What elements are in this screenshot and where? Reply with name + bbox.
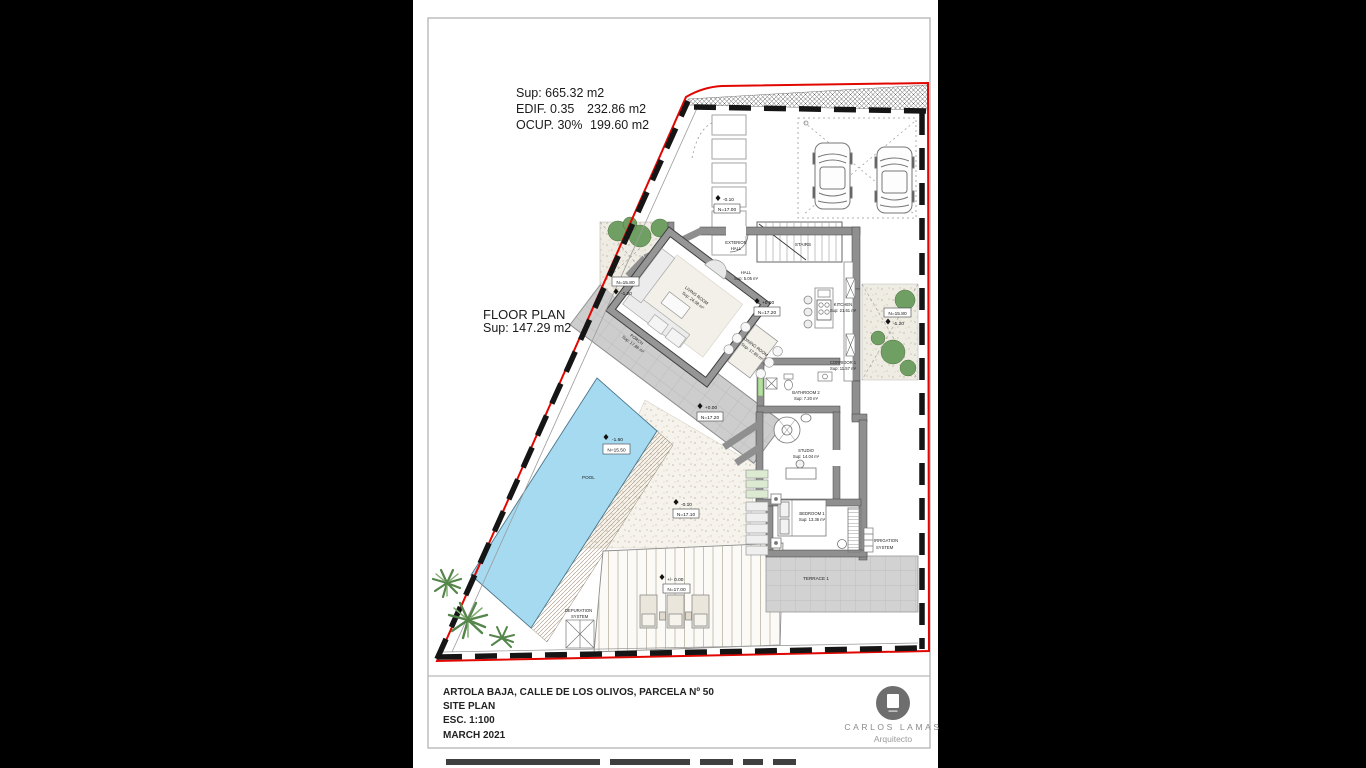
depuration-system-box xyxy=(566,620,594,648)
drawing-name: SITE PLAN xyxy=(443,701,495,712)
studio-label: STUDIO xyxy=(798,448,815,453)
level-entrance-delta: -0.10 xyxy=(723,197,734,203)
kitchen-label: KITCHEN xyxy=(834,302,852,307)
floor-plan-title: FLOOR PLAN Sup: 147.29 m2 xyxy=(483,307,571,335)
entrance-opening xyxy=(726,226,746,236)
level-deck-n: N=17.00 xyxy=(667,587,686,593)
site-plan-canvas: PORCH Sup: 17.86 m² xyxy=(0,0,1366,768)
drawing-scale: ESC. 1:100 xyxy=(443,715,495,726)
wood-deck xyxy=(594,543,783,652)
level-entrance-n: N=17.00 xyxy=(718,207,737,213)
terrace-tiles xyxy=(766,556,918,612)
kitchen-area: Sup: 21.61 m² xyxy=(830,308,857,313)
drawing-date: MARCH 2021 xyxy=(443,730,506,741)
stat-ocup-label: OCUP. 30% xyxy=(516,118,582,132)
bathroom2-area: Sup: 7.20 m² xyxy=(794,396,819,401)
stat-edif-value: 232.86 m2 xyxy=(587,102,646,116)
level-gravel-n: N=17.10 xyxy=(677,512,696,518)
bathroom2-label: BATHROOM 2 xyxy=(792,390,820,395)
level-main-n: N=17.20 xyxy=(758,310,777,316)
irrigation-system-box xyxy=(864,528,873,552)
project-address: ARTOLA BAJA, CALLE DE LOS OLIVOS, PARCEL… xyxy=(443,687,714,698)
irrigation-label-2: SYSTEM xyxy=(876,545,894,550)
car-icon xyxy=(875,147,914,213)
bedroom1-area: Sup: 13.36 m² xyxy=(799,517,826,522)
corridor-label: CORRIDOR 1 xyxy=(830,360,857,365)
level-garden-left-n: N=15.80 xyxy=(616,280,635,286)
level-garden-left-delta: -1.20 xyxy=(621,291,632,297)
hall-area: Sup: 5.05 m² xyxy=(734,276,759,281)
level-garden-right-n: N=15.80 xyxy=(888,311,907,317)
level-pool-delta: -1.60 xyxy=(612,437,623,443)
bedroom1-label: BEDROOM 1 xyxy=(799,511,825,516)
exterior-hall-label-1: EXTERIOR xyxy=(725,240,746,245)
terrace-label: TERRACE 1 xyxy=(803,576,829,581)
pool-label: POOL xyxy=(582,475,595,480)
level-porch-n: N=17.20 xyxy=(701,415,720,421)
level-pool-n: N=15.50 xyxy=(607,448,626,454)
stat-sup: Sup: 665.32 m2 xyxy=(516,86,604,100)
level-garden-right-delta: -1.20 xyxy=(893,321,904,327)
level-main-delta: +0.00 xyxy=(762,300,774,306)
irrigation-label-1: IRRIGATION xyxy=(874,538,898,543)
garden-right xyxy=(862,284,918,380)
level-gravel-delta: -0.10 xyxy=(681,502,692,508)
level-porch-delta: +0.00 xyxy=(705,405,717,411)
stat-ocup-value: 199.60 m2 xyxy=(590,118,649,132)
wardrobe xyxy=(848,508,861,552)
logo-mark-icon xyxy=(889,711,898,712)
corridor-area: Sup: 11.57 m² xyxy=(830,366,857,371)
depuration-label-2: SYSTEM xyxy=(571,614,589,619)
hall-label: HALL xyxy=(741,270,752,275)
floor-plan-area: Sup: 147.29 m2 xyxy=(483,321,571,335)
studio-area: Sup: 14.04 m² xyxy=(793,454,820,459)
car-icon xyxy=(813,143,852,209)
studio-door-opening xyxy=(832,450,841,466)
stairs-label: STAIRS xyxy=(795,242,811,247)
logo-square-icon xyxy=(887,694,899,708)
architect-role: Arquitecto xyxy=(874,734,913,744)
level-deck-delta: +/- 0.00 xyxy=(667,577,684,583)
sun-loungers xyxy=(640,595,709,628)
floor-plan-label: FLOOR PLAN xyxy=(483,307,565,322)
sheet-bottom-bar xyxy=(446,759,796,765)
architectural-drawing-sheet: PORCH Sup: 17.86 m² xyxy=(0,0,1366,768)
exterior-hall-label-2: HALL xyxy=(731,246,742,251)
depuration-label-1: DEPURATION xyxy=(565,608,592,613)
stat-edif-label: EDIF. 0.35 xyxy=(516,102,574,116)
architect-name: CARLOS LAMAS xyxy=(844,722,941,732)
